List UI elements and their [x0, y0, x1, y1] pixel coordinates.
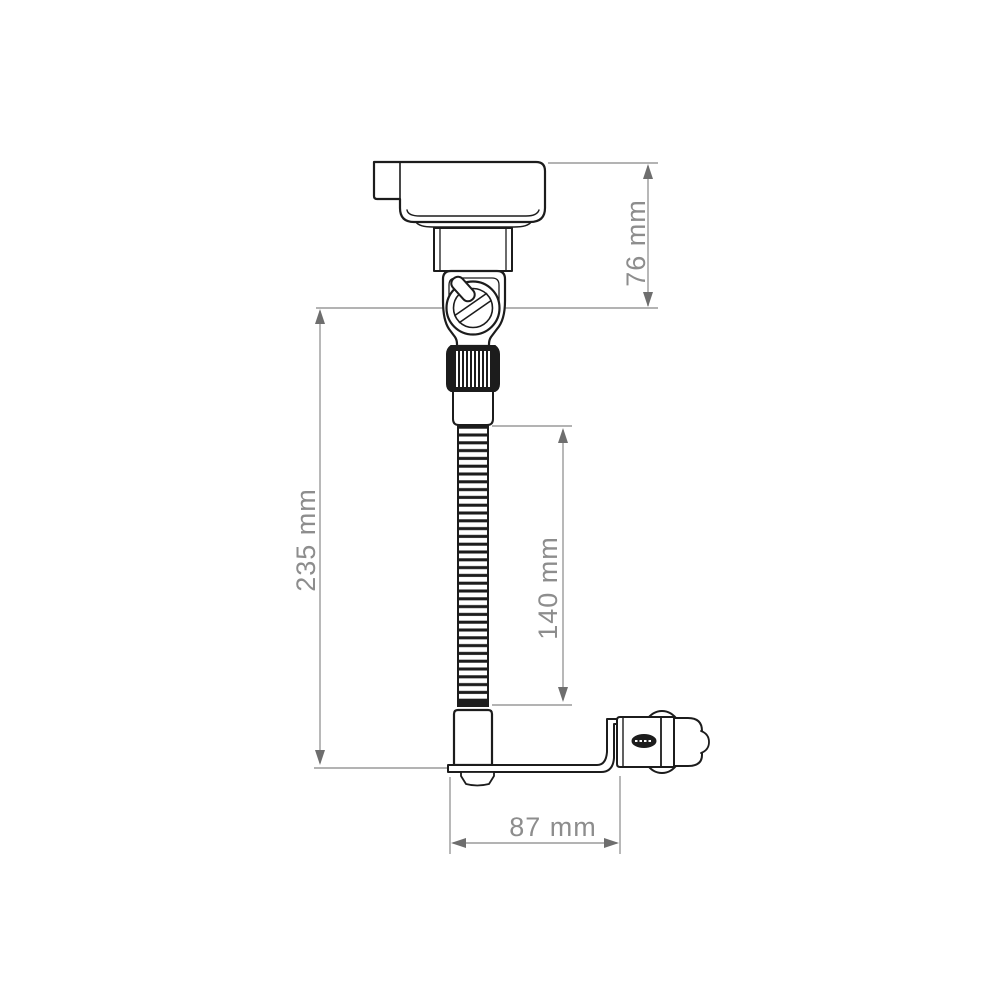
foot-body — [461, 772, 494, 786]
plug-tip-cap — [674, 718, 702, 766]
base-block — [454, 710, 492, 765]
arrow-up-icon — [315, 309, 325, 324]
dimension-87mm: 87 mm — [450, 776, 620, 854]
collar-knurling — [457, 351, 489, 387]
dimension-235mm: 235 mm — [291, 309, 448, 768]
arrow-down-icon — [643, 292, 653, 307]
arrow-left-icon — [451, 838, 466, 848]
head-neck — [434, 228, 512, 271]
arrow-up-icon — [643, 164, 653, 179]
arrow-right-icon — [604, 838, 619, 848]
knurled-collar — [447, 346, 499, 391]
tube-ribbed-body — [458, 425, 488, 706]
charger-plug — [617, 711, 709, 773]
arrow-down-icon — [315, 750, 325, 765]
taper-body — [453, 391, 493, 425]
dimension-label-76mm: 76 mm — [621, 199, 651, 287]
plug-tip-contact — [701, 731, 709, 753]
base-block-body — [454, 710, 492, 765]
dimension-140mm: 140 mm — [492, 426, 572, 705]
dimension-label-87mm: 87 mm — [509, 812, 597, 842]
technical-drawing-page: 76 mm 235 mm 140 mm 87 mm — [0, 0, 1000, 1000]
mounting-clamp — [443, 271, 505, 346]
dimension-label-140mm: 140 mm — [533, 536, 563, 640]
collar-taper — [453, 391, 493, 425]
arrow-down-icon — [558, 687, 568, 702]
arrow-up-icon — [558, 428, 568, 443]
dimension-label-235mm: 235 mm — [291, 488, 321, 592]
head-unit — [374, 162, 545, 227]
gooseneck-tube — [458, 425, 488, 706]
neck-outer — [434, 228, 512, 271]
gooseneck-mount-drawing: 76 mm 235 mm 140 mm 87 mm — [0, 0, 1000, 1000]
mounting-foot — [461, 772, 494, 786]
tube-end-band — [458, 700, 488, 706]
